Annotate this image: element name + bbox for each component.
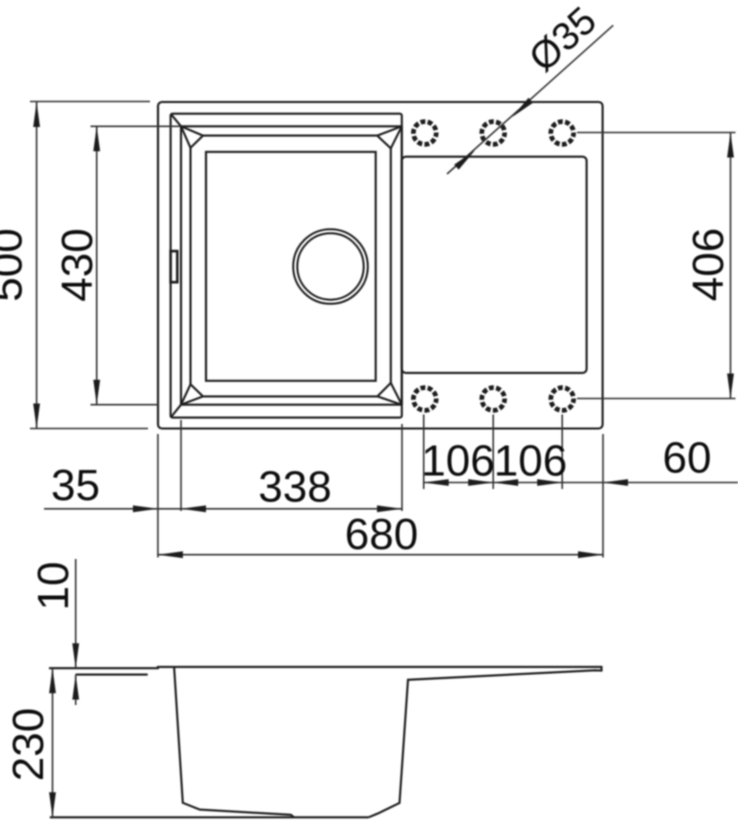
svg-text:230: 230 [4, 708, 53, 781]
svg-text:338: 338 [258, 463, 331, 512]
svg-text:106: 106 [421, 437, 494, 486]
svg-text:406: 406 [684, 228, 733, 301]
svg-text:35: 35 [51, 461, 100, 510]
svg-text:500: 500 [0, 228, 32, 301]
svg-text:430: 430 [53, 228, 102, 301]
svg-text:60: 60 [663, 434, 712, 483]
svg-text:680: 680 [345, 510, 418, 559]
svg-text:106: 106 [494, 437, 567, 486]
svg-text:10: 10 [29, 562, 78, 611]
